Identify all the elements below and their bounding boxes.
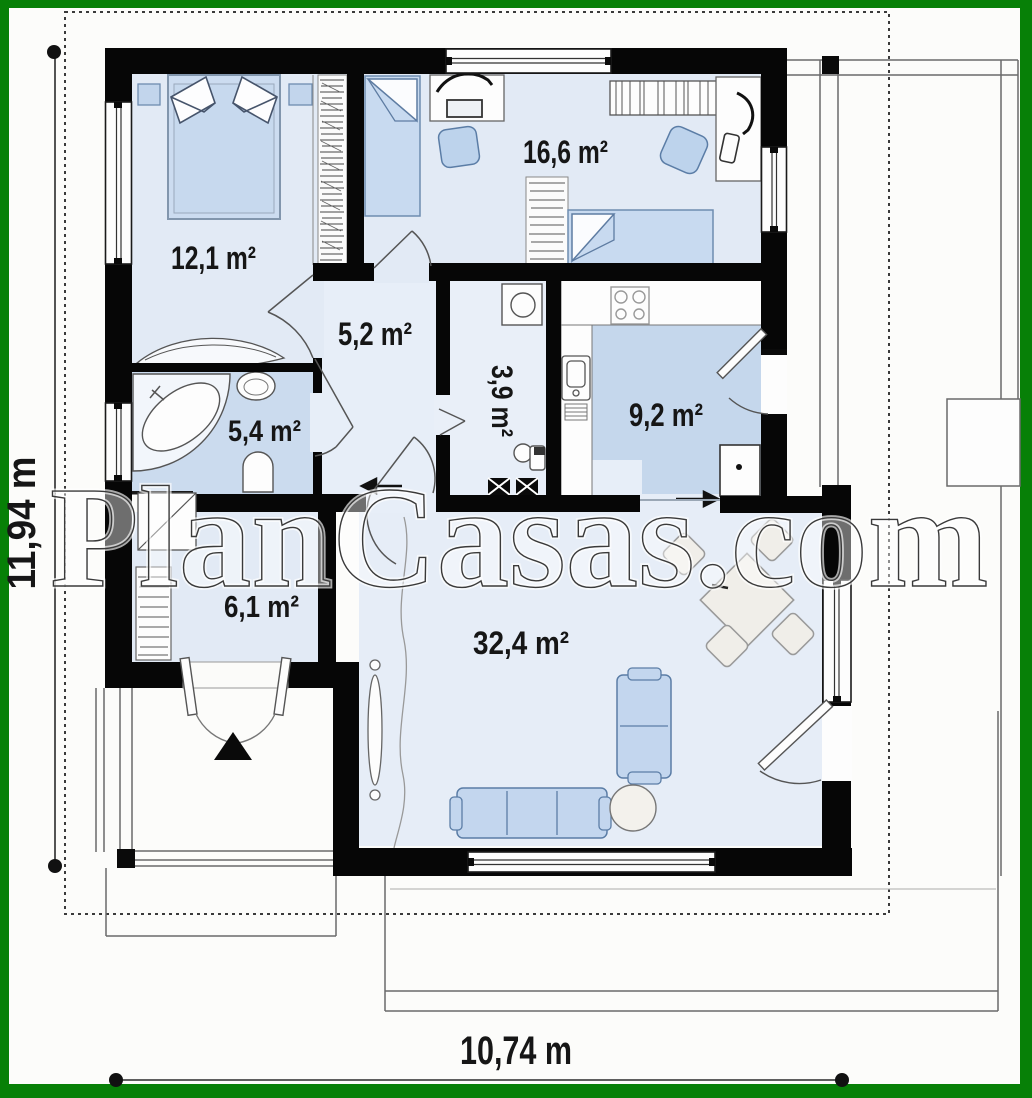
svg-text:5,4 m²: 5,4 m² xyxy=(228,415,301,448)
svg-text:5,2 m²: 5,2 m² xyxy=(338,316,412,352)
svg-text:11,94 m: 11,94 m xyxy=(0,457,44,590)
svg-text:3,9 m²: 3,9 m² xyxy=(485,365,518,437)
svg-text:16,6 m²: 16,6 m² xyxy=(523,134,608,170)
svg-text:12,1 m²: 12,1 m² xyxy=(171,240,256,276)
svg-text:9,2 m²: 9,2 m² xyxy=(629,397,703,433)
svg-text:10,74 m: 10,74 m xyxy=(460,1029,572,1073)
svg-text:PlanCasas.com: PlanCasas.com xyxy=(50,458,988,618)
svg-text:32,4 m²: 32,4 m² xyxy=(473,625,569,661)
